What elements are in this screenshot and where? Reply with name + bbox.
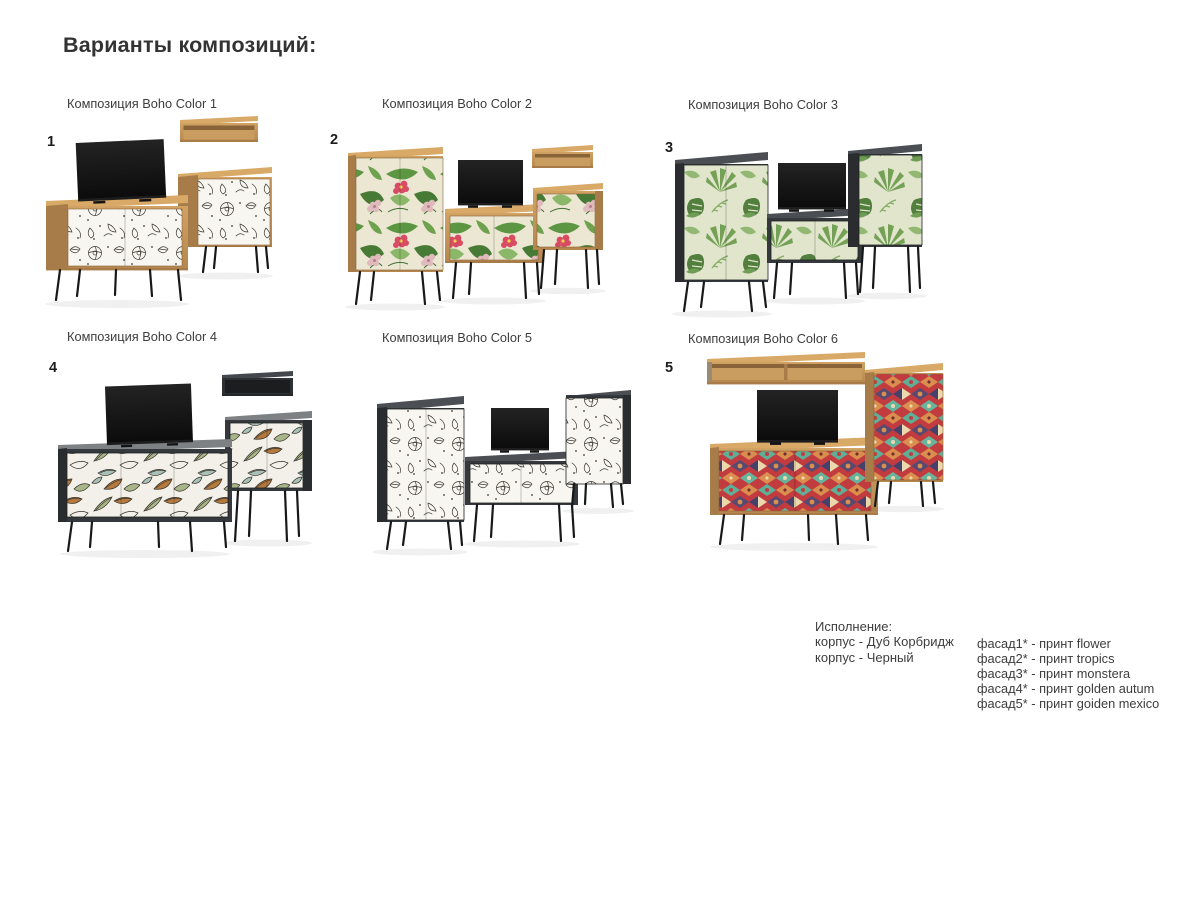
cabinet-right: [224, 411, 312, 547]
tv-stand: [442, 204, 546, 305]
wall-shelf: [532, 145, 593, 168]
wall-shelf-black: [222, 371, 293, 396]
composition-2-render: [330, 110, 620, 315]
composition-4-label: Композиция Boho Color 4: [67, 329, 217, 344]
tall-cabinet-left: [672, 152, 772, 318]
legend-facade-option: фасад2* - принт tropics: [977, 651, 1159, 666]
tall-cabinet-right: [562, 390, 634, 514]
wall-shelf-long: [707, 352, 865, 384]
tv: [458, 160, 523, 208]
legend-facade-option: фасад3* - принт monstera: [977, 666, 1159, 681]
legend-body-option: корпус - Дуб Корбридж: [815, 634, 954, 649]
tall-cabinet: [177, 167, 273, 280]
small-cabinet: [530, 183, 606, 294]
composition-2-label: Композиция Boho Color 2: [382, 96, 532, 111]
composition-1-render: [40, 110, 320, 315]
composition-6-render: [650, 340, 950, 570]
tall-cabinet-left: [372, 396, 468, 556]
catalog-page: Варианты композиций: Композиция Boho Col…: [0, 0, 1201, 901]
composition-5-label: Композиция Boho Color 5: [382, 330, 532, 345]
page-title: Варианты композиций:: [63, 33, 316, 58]
tv-stand-long: [58, 439, 232, 558]
legend-facades: фасад1* - принт flower фасад2* - принт t…: [977, 636, 1159, 711]
tall-cabinet-right: [847, 144, 927, 299]
legend-facade-option: фасад5* - принт goiden mexico: [977, 696, 1159, 711]
tv: [757, 390, 838, 445]
legend-title: Исполнение:: [815, 619, 954, 634]
composition-3-render: [650, 110, 950, 320]
tv: [76, 139, 167, 204]
legend-facade-option: фасад4* - принт golden autum: [977, 681, 1159, 696]
legend-body: Исполнение: корпус - Дуб Корбридж корпус…: [815, 619, 954, 665]
tv-stand: [45, 195, 189, 308]
tv-stand: [464, 451, 580, 548]
tall-cabinet: [345, 147, 445, 311]
tv: [105, 384, 193, 448]
tv: [778, 163, 846, 212]
wall-shelf: [180, 116, 258, 142]
composition-4-render: [40, 345, 330, 560]
composition-1-label: Композиция Boho Color 1: [67, 96, 217, 111]
tall-cabinet-right: [864, 363, 944, 512]
composition-5-render: [360, 345, 650, 570]
tv-stand: [710, 437, 878, 551]
legend-body-option: корпус - Черный: [815, 650, 954, 665]
legend-facade-option: фасад1* - принт flower: [977, 636, 1159, 651]
tv: [491, 408, 549, 453]
